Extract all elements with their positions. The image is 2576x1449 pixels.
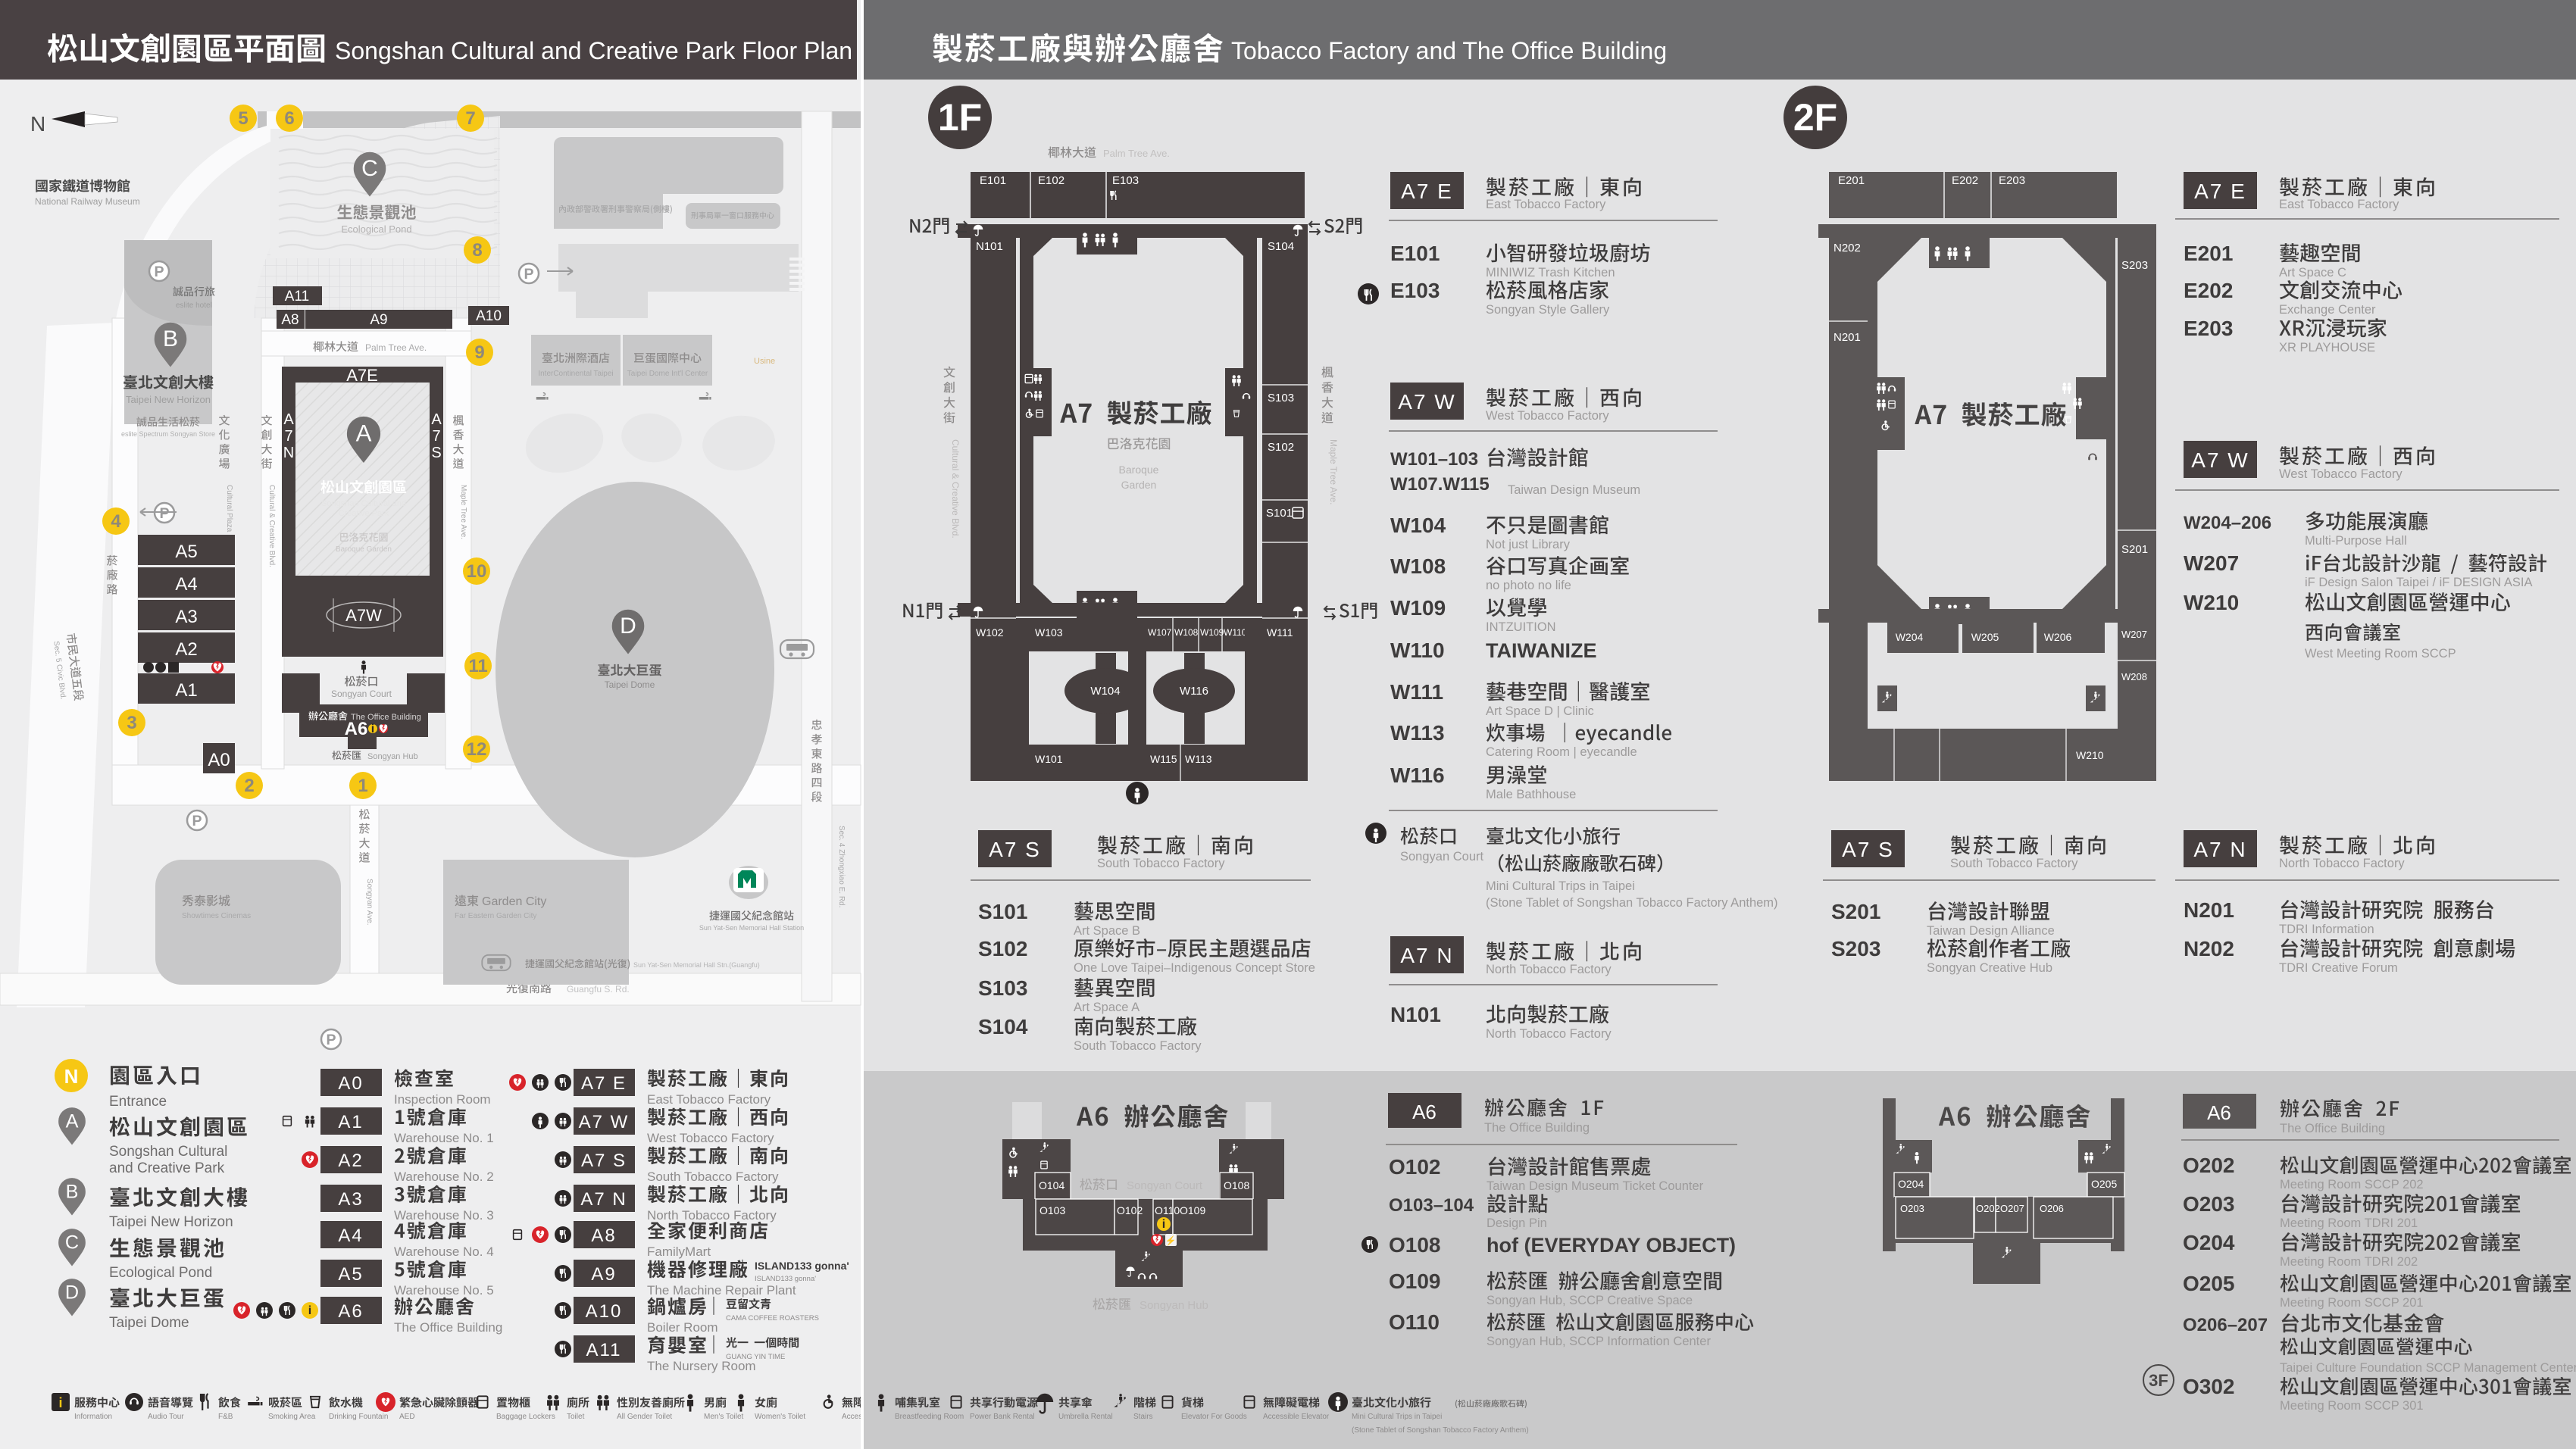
svg-text:Showtimes Cinemas: Showtimes Cinemas [182,912,251,920]
svg-text:Ecological Pond: Ecological Pond [341,223,411,235]
svg-text:W104: W104 [1390,514,1446,537]
svg-text:Ecological Pond: Ecological Pond [109,1265,212,1281]
svg-text:N: N [64,1065,79,1088]
svg-text:Cultural Plaza: Cultural Plaza [225,485,233,532]
svg-text:A7 E: A7 E [1401,180,1453,203]
svg-text:A3: A3 [175,607,197,627]
svg-text:A7 N: A7 N [2193,838,2246,861]
svg-text:O205: O205 [2091,1178,2117,1190]
svg-text:Meeting Room SCCP 201: Meeting Room SCCP 201 [2280,1296,2424,1310]
svg-text:East Tobacco Factory: East Tobacco Factory [1486,198,1606,211]
svg-text:S102: S102 [978,937,1027,960]
svg-text:Exchange Center: Exchange Center [2279,303,2376,317]
svg-text:Songshan Cultural and: Songshan Cultural and [321,499,406,508]
svg-text:Songshan Cultural and Creative: Songshan Cultural and Creative Park Floo… [335,37,852,64]
svg-text:O104: O104 [1039,1179,1064,1191]
svg-text:Multi-Purpose Hall: Multi-Purpose Hall [2305,534,2407,548]
svg-text:Design Pin: Design Pin [1487,1216,1547,1230]
svg-text:A0: A0 [208,750,230,770]
svg-text:W102: W102 [976,626,1004,639]
svg-text:S: S [431,445,441,461]
svg-text:A7 W: A7 W [1398,390,1455,414]
svg-text:1: 1 [358,776,367,796]
svg-text:North Tobacco Factory: North Tobacco Factory [647,1208,777,1223]
svg-text:O203: O203 [1900,1203,1924,1214]
svg-text:W109: W109 [1200,627,1224,638]
svg-text:Songyan Creative Hub: Songyan Creative Hub [1927,961,2052,975]
svg-text:W206: W206 [2044,631,2072,643]
svg-text:Taiwan Design Museum Ticket Co: Taiwan Design Museum Ticket Counter [1487,1179,1704,1193]
svg-text:W207: W207 [2121,629,2147,640]
svg-text:A5: A5 [338,1264,363,1285]
svg-text:Toilet: Toilet [567,1413,585,1421]
svg-text:Art Space B: Art Space B [1074,924,1140,938]
svg-text:O103–104: O103–104 [1389,1195,1474,1216]
svg-text:A4: A4 [338,1226,363,1246]
svg-text:10: 10 [467,561,487,582]
svg-text:Taipei Dome: Taipei Dome [109,1315,189,1331]
svg-text:The Machine Repair Plant: The Machine Repair Plant [647,1283,796,1298]
svg-text:Baroque: Baroque [1119,464,1159,476]
svg-text:1F: 1F [938,96,982,139]
svg-text:Taiwan Design Alliance: Taiwan Design Alliance [1927,924,2055,938]
svg-text:5: 5 [238,108,248,129]
svg-text:E101: E101 [980,174,1006,187]
svg-text:CAMA COFFEE ROASTERS: CAMA COFFEE ROASTERS [726,1314,819,1323]
svg-text:and Creative Park: and Creative Park [109,1160,225,1176]
svg-text:E103: E103 [1112,174,1139,187]
svg-text:Maple Tree Ave.: Maple Tree Ave. [1328,439,1339,505]
svg-text:A1: A1 [338,1112,363,1132]
svg-text:i: i [308,1304,311,1317]
svg-text:Cultural & Creative Blvd.: Cultural & Creative Blvd. [267,485,276,567]
svg-text:A6: A6 [338,1301,363,1322]
svg-text:A7 S: A7 S [581,1151,627,1171]
svg-text:GUANG YIN TIME: GUANG YIN TIME [726,1353,785,1361]
svg-text:S101: S101 [978,900,1027,923]
svg-text:⚡: ⚡ [1165,1235,1177,1246]
svg-text:P: P [524,266,533,283]
svg-text:Art Space D | Clinic: Art Space D | Clinic [1486,704,1594,718]
svg-text:Songyan Hub, SCCP Information: Songyan Hub, SCCP Information Center [1487,1335,1711,1348]
svg-text:S203: S203 [2121,259,2148,272]
svg-text:O109: O109 [1180,1204,1205,1216]
svg-text:D: D [65,1282,79,1303]
svg-text:National Railway Museum: National Railway Museum [35,196,140,207]
svg-text:West Tobacco Factory: West Tobacco Factory [2279,467,2402,481]
svg-text:A5: A5 [175,542,197,562]
svg-text:A7 E: A7 E [581,1073,627,1094]
svg-text:South Tobacco Factory: South Tobacco Factory [1074,1039,1202,1053]
svg-text:Inspection Room: Inspection Room [394,1092,491,1107]
svg-text:West Tobacco Factory: West Tobacco Factory [647,1131,774,1145]
svg-text:North Tobacco Factory: North Tobacco Factory [2279,857,2405,870]
svg-text:TAIWANIZE: TAIWANIZE [1486,639,1596,662]
svg-text:W205: W205 [1971,631,1999,643]
svg-text:3: 3 [127,713,136,733]
svg-text:Not just Library: Not just Library [1486,538,1571,551]
svg-text:Audio Tour: Audio Tour [148,1413,184,1421]
svg-text:E203: E203 [2184,317,2233,340]
svg-text:InterContinental Taipei: InterContinental Taipei [538,370,613,378]
svg-text:D: D [620,614,636,639]
svg-text:MINIWIZ Trash Kitchen: MINIWIZ Trash Kitchen [1486,266,1615,279]
svg-text:O110: O110 [1155,1204,1180,1216]
svg-text:C: C [361,156,378,181]
svg-text:Taipei New Horizon: Taipei New Horizon [109,1214,233,1230]
svg-text:O302: O302 [2183,1375,2235,1398]
svg-text:Boiler Room: Boiler Room [647,1320,718,1335]
svg-text:INTZUITION: INTZUITION [1486,620,1556,634]
svg-text:O102: O102 [1117,1204,1143,1216]
svg-text:Warehouse No. 1: Warehouse No. 1 [394,1131,494,1145]
svg-text:FamilyMart: FamilyMart [647,1244,711,1259]
svg-text:Baggage Lockers: Baggage Lockers [496,1413,555,1421]
svg-text:Guangfu S. Rd.: Guangfu S. Rd. [567,984,630,995]
svg-text:A11: A11 [285,289,309,304]
svg-text:Garden City: Garden City [482,895,546,908]
svg-text:A2: A2 [175,639,197,660]
svg-text:O206: O206 [2040,1203,2064,1214]
svg-text:no photo no life: no photo no life [1486,579,1571,592]
svg-text:O202: O202 [1976,1203,2000,1214]
svg-text:Songyan Court: Songyan Court [1400,850,1483,863]
svg-text:East Tobacco Factory: East Tobacco Factory [2279,198,2399,211]
svg-text:i: i [1162,1218,1165,1231]
svg-text:O108: O108 [1389,1233,1441,1257]
svg-text:Warehouse No. 2: Warehouse No. 2 [394,1170,494,1184]
svg-text:W210: W210 [2184,591,2239,614]
svg-text:A2: A2 [338,1151,363,1171]
svg-text:South Tobacco Factory: South Tobacco Factory [1097,857,1225,870]
svg-text:Songshan Cultural: Songshan Cultural [109,1144,227,1160]
svg-text:South Tobacco Factory: South Tobacco Factory [1950,857,2078,870]
svg-text:7: 7 [284,428,292,445]
svg-text:A0: A0 [338,1073,363,1094]
svg-text:W113: W113 [1390,721,1445,745]
svg-text:The Office Building: The Office Building [394,1320,502,1335]
svg-text:A1: A1 [175,680,197,701]
svg-text:7: 7 [432,428,440,445]
svg-text:A7 S: A7 S [989,838,1041,861]
svg-text:W109: W109 [1390,596,1446,620]
svg-text:Songyan Hub: Songyan Hub [367,752,418,761]
svg-text:Palm Tree Ave.: Palm Tree Ave. [365,342,427,353]
svg-text:E103: E103 [1390,279,1440,302]
svg-text:W101–103: W101–103 [1390,449,1478,470]
svg-text:A6: A6 [345,719,368,739]
svg-text:O109: O109 [1389,1269,1441,1293]
svg-text:W101: W101 [1035,753,1063,765]
svg-text:W210: W210 [2076,749,2104,761]
svg-text:O204: O204 [1898,1178,1924,1190]
svg-text:eslite Spectrum Songyan Store: eslite Spectrum Songyan Store [121,430,215,438]
svg-text:Songyan Style Gallery: Songyan Style Gallery [1486,303,1610,317]
svg-text:O205: O205 [2183,1272,2235,1295]
svg-text:Catering Room | eyecandle: Catering Room | eyecandle [1486,745,1637,759]
svg-text:W113: W113 [1185,753,1212,765]
svg-text:A3: A3 [338,1189,363,1210]
svg-text:Male Bathhouse: Male Bathhouse [1486,788,1576,801]
svg-text:iF Design Salon Taipei / iF DE: iF Design Salon Taipei / iF DESIGN ASIA [2305,576,2533,589]
svg-text:TDRI Creative Forum: TDRI Creative Forum [2279,961,2398,975]
svg-text:A: A [431,411,442,428]
svg-text:Warehouse No. 3: Warehouse No. 3 [394,1208,494,1223]
svg-text:S102: S102 [1268,441,1294,454]
svg-text:E202: E202 [2184,279,2233,302]
svg-text:eslite hotel: eslite hotel [176,301,212,310]
svg-text:hof (EVERYDAY OBJECT): hof (EVERYDAY OBJECT) [1487,1234,1736,1257]
svg-text:S104: S104 [1268,240,1294,253]
svg-text:Accessible Elevator: Accessible Elevator [1263,1413,1330,1421]
svg-text:B: B [163,326,178,351]
svg-text:O207: O207 [2000,1203,2024,1214]
svg-text:Maple Tree Ave.: Maple Tree Ave. [459,485,467,539]
svg-text:North Tobacco Factory: North Tobacco Factory [1486,1027,1612,1041]
svg-text:Tobacco Factory and The Office: Tobacco Factory and The Office Building [1231,37,1667,64]
svg-text:O206–207: O206–207 [2183,1315,2268,1335]
svg-text:TDRI Information: TDRI Information [2279,923,2374,936]
svg-text:7: 7 [465,108,475,129]
svg-text:Mini Cultural Trips in Taipei: Mini Cultural Trips in Taipei [1352,1413,1442,1421]
svg-text:S201: S201 [2121,543,2148,556]
svg-text:Usine: Usine [754,357,775,366]
svg-text:ISLAND133 gonna': ISLAND133 gonna' [755,1275,816,1283]
svg-text:S101: S101 [1266,507,1293,520]
svg-text:W116: W116 [1390,764,1445,787]
svg-text:A11: A11 [586,1340,622,1360]
svg-text:E201: E201 [1838,174,1865,187]
svg-text:W204–206: W204–206 [2184,513,2271,533]
svg-text:W207: W207 [2184,551,2239,575]
svg-text:i: i [58,1395,62,1410]
svg-text:O202: O202 [2183,1154,2235,1177]
svg-text:C: C [65,1232,79,1253]
svg-text:S103: S103 [1268,392,1294,404]
svg-text:Taipei Culture Foundation SCCP: Taipei Culture Foundation SCCP Managemen… [2280,1361,2576,1375]
svg-text:Taipei New Horizon: Taipei New Horizon [126,394,211,405]
svg-text:Sun Yat-Sen Memorial Hall Stat: Sun Yat-Sen Memorial Hall Station [699,924,804,932]
svg-text:W111: W111 [1267,626,1293,639]
svg-text:Warehouse No. 4: Warehouse No. 4 [394,1244,494,1259]
svg-text:4: 4 [111,511,121,532]
svg-text:O108: O108 [1224,1179,1249,1191]
svg-text:Art Space A: Art Space A [1074,1001,1140,1014]
svg-text:W107: W107 [1148,627,1172,638]
svg-text:Elevator For Goods: Elevator For Goods [1181,1413,1247,1421]
svg-text:Stairs: Stairs [1133,1413,1153,1421]
svg-text:The Office Building: The Office Building [1484,1121,1590,1135]
svg-text:Sec. 4 Zhongxiao E. Rd.: Sec. 4 Zhongxiao E. Rd. [837,826,846,907]
svg-text:XR PLAYHOUSE: XR PLAYHOUSE [2279,341,2375,354]
svg-text:S201: S201 [1831,900,1880,923]
svg-text:A10: A10 [586,1301,623,1322]
svg-text:A10: A10 [476,308,502,324]
svg-text:N: N [30,112,45,136]
svg-text:Songyan Court: Songyan Court [331,689,392,699]
svg-text:S103: S103 [978,976,1027,1000]
svg-text:W103: W103 [1035,626,1063,639]
svg-text:Baroque Garden: Baroque Garden [336,545,392,554]
svg-text:W107.W115: W107.W115 [1390,474,1490,495]
svg-text:P: P [326,1032,336,1048]
svg-text:P: P [192,813,202,829]
svg-text:N202: N202 [1834,242,1861,255]
svg-text:W110: W110 [1390,639,1445,662]
svg-text:O102: O102 [1389,1155,1441,1179]
svg-text:N202: N202 [2184,937,2234,960]
svg-text:2F: 2F [1793,96,1837,139]
svg-text:A7 S: A7 S [1842,838,1894,861]
svg-text:Meeting Room TDRI 201: Meeting Room TDRI 201 [2280,1216,2418,1230]
svg-text:Meeting Room SCCP 301: Meeting Room SCCP 301 [2280,1399,2424,1413]
svg-text:B: B [66,1181,79,1202]
svg-text:Art Space C: Art Space C [2279,266,2346,279]
svg-text:12: 12 [467,739,487,760]
svg-text:Cultural & Creative Blvd.: Cultural & Creative Blvd. [950,439,961,539]
svg-text:P: P [154,264,164,280]
svg-text:West Tobacco Factory: West Tobacco Factory [1486,409,1609,423]
svg-text:E202: E202 [1952,174,1978,187]
svg-text:A7W: A7W [345,606,382,625]
svg-text:W116: W116 [1180,685,1208,698]
svg-text:A8: A8 [591,1226,616,1246]
svg-text:Far Eastern Garden City: Far Eastern Garden City [455,912,536,920]
svg-text:Taipei Dome Int'l Center: Taipei Dome Int'l Center [627,370,708,378]
svg-text:A7 N: A7 N [1400,944,1453,967]
svg-text:W204: W204 [1896,631,1924,643]
svg-text:West Meeting Room SCCP: West Meeting Room SCCP [2305,647,2456,660]
svg-text:E201: E201 [2184,242,2233,265]
svg-text:(Stone Tablet of Songshan Toba: (Stone Tablet of Songshan Tobacco Factor… [1486,896,1778,910]
svg-text:Meeting Room SCCP 202: Meeting Room SCCP 202 [2280,1178,2424,1191]
svg-text:A7 N: A7 N [580,1189,627,1210]
svg-text:Mini Cultural Trips in Taipei: Mini Cultural Trips in Taipei [1486,879,1635,893]
svg-text:A8: A8 [281,312,299,328]
svg-text:9: 9 [474,342,484,363]
svg-text:Information: Information [74,1413,112,1421]
svg-text:East Tobacco Factory: East Tobacco Factory [647,1092,771,1107]
svg-text:Umbrella Rental: Umbrella Rental [1058,1413,1113,1421]
svg-text:A: A [283,411,294,428]
svg-text:Entrance: Entrance [109,1094,167,1110]
svg-text:Breastfeeding Room: Breastfeeding Room [895,1413,964,1421]
svg-text:W115: W115 [1150,753,1177,765]
svg-text:2: 2 [244,776,254,796]
svg-text:A6: A6 [1412,1101,1436,1123]
svg-text:The Office Building: The Office Building [2280,1122,2385,1135]
svg-text:A9: A9 [591,1264,616,1285]
svg-text:Creative Park: Creative Park [339,509,389,518]
svg-text:Taipei Dome: Taipei Dome [605,679,655,690]
svg-text:O203: O203 [2183,1192,2235,1216]
svg-text:E102: E102 [1038,174,1064,187]
svg-text:6: 6 [284,108,294,129]
svg-text:(Stone Tablet of Songshan Toba: (Stone Tablet of Songshan Tobacco Factor… [1352,1426,1529,1435]
svg-text:W108: W108 [1174,627,1199,638]
svg-text:Palm Tree Ave.: Palm Tree Ave. [1103,148,1170,159]
svg-text:P: P [159,505,169,522]
svg-text:N201: N201 [2184,898,2234,922]
svg-text:North Tobacco Factory: North Tobacco Factory [1486,963,1612,976]
svg-text:8: 8 [472,240,482,261]
svg-text:Songyan Ave.: Songyan Ave. [365,879,374,926]
svg-text:Taiwan Design Museum: Taiwan Design Museum [1508,483,1640,497]
svg-text:E203: E203 [1999,174,2025,187]
svg-text:E101: E101 [1390,242,1440,265]
svg-text:W104: W104 [1090,685,1120,698]
svg-text:A4: A4 [175,574,197,595]
svg-text:W111: W111 [1390,680,1443,704]
svg-text:O204: O204 [2183,1231,2235,1254]
svg-text:A: A [66,1110,79,1132]
svg-text:Songyan Hub: Songyan Hub [1140,1299,1208,1312]
svg-text:Meeting Room TDRI 202: Meeting Room TDRI 202 [2280,1255,2418,1269]
svg-text:A7 E: A7 E [2194,180,2246,203]
svg-text:O103: O103 [1039,1204,1065,1216]
svg-text:3F: 3F [2149,1371,2168,1390]
svg-text:A7 W: A7 W [2191,448,2249,472]
svg-text:Warehouse No. 5: Warehouse No. 5 [394,1283,494,1298]
svg-text:Power Bank Rental: Power Bank Rental [970,1413,1035,1421]
svg-text:Sun Yat-Sen Memorial Hall Stn.: Sun Yat-Sen Memorial Hall Stn.(Guangfu) [633,961,760,969]
svg-text:South Tobacco Factory: South Tobacco Factory [647,1170,779,1184]
svg-text:A: A [356,420,372,446]
svg-text:ISLAND133 gonna': ISLAND133 gonna' [755,1260,849,1272]
svg-text:Songyan Court: Songyan Court [1127,1179,1203,1192]
svg-text:S104: S104 [978,1015,1028,1038]
svg-text:One Love Taipei–Indigenous Con: One Love Taipei–Indigenous Concept Store [1074,961,1315,975]
svg-text:O110: O110 [1389,1310,1440,1334]
svg-text:A7E: A7E [346,366,378,385]
svg-text:AED: AED [399,1413,415,1421]
svg-text:Songyan Hub, SCCP Creative Spa: Songyan Hub, SCCP Creative Space [1487,1294,1693,1307]
svg-text:Drinking Fountain: Drinking Fountain [329,1413,388,1421]
svg-text:A7 W: A7 W [579,1112,630,1132]
svg-text:N101: N101 [1390,1003,1441,1026]
svg-text:11: 11 [468,656,487,676]
svg-text:N: N [283,445,294,461]
svg-text:F&B: F&B [218,1413,233,1421]
svg-text:N201: N201 [1834,331,1861,344]
svg-text:N101: N101 [976,240,1003,253]
svg-text:Garden: Garden [1121,479,1157,491]
svg-text:W208: W208 [2121,671,2147,682]
svg-text:i: i [371,723,374,735]
svg-text:S203: S203 [1831,937,1880,960]
svg-text:Women's Toilet: Women's Toilet [755,1413,805,1421]
svg-text:W110: W110 [1224,627,1247,638]
svg-text:Men's Toilet: Men's Toilet [704,1413,744,1421]
svg-text:All Gender Toilet: All Gender Toilet [617,1413,672,1421]
svg-text:W108: W108 [1390,554,1446,578]
svg-text:Smoking Area: Smoking Area [268,1413,316,1421]
svg-text:A9: A9 [370,312,387,328]
svg-text:A6: A6 [2207,1101,2231,1124]
